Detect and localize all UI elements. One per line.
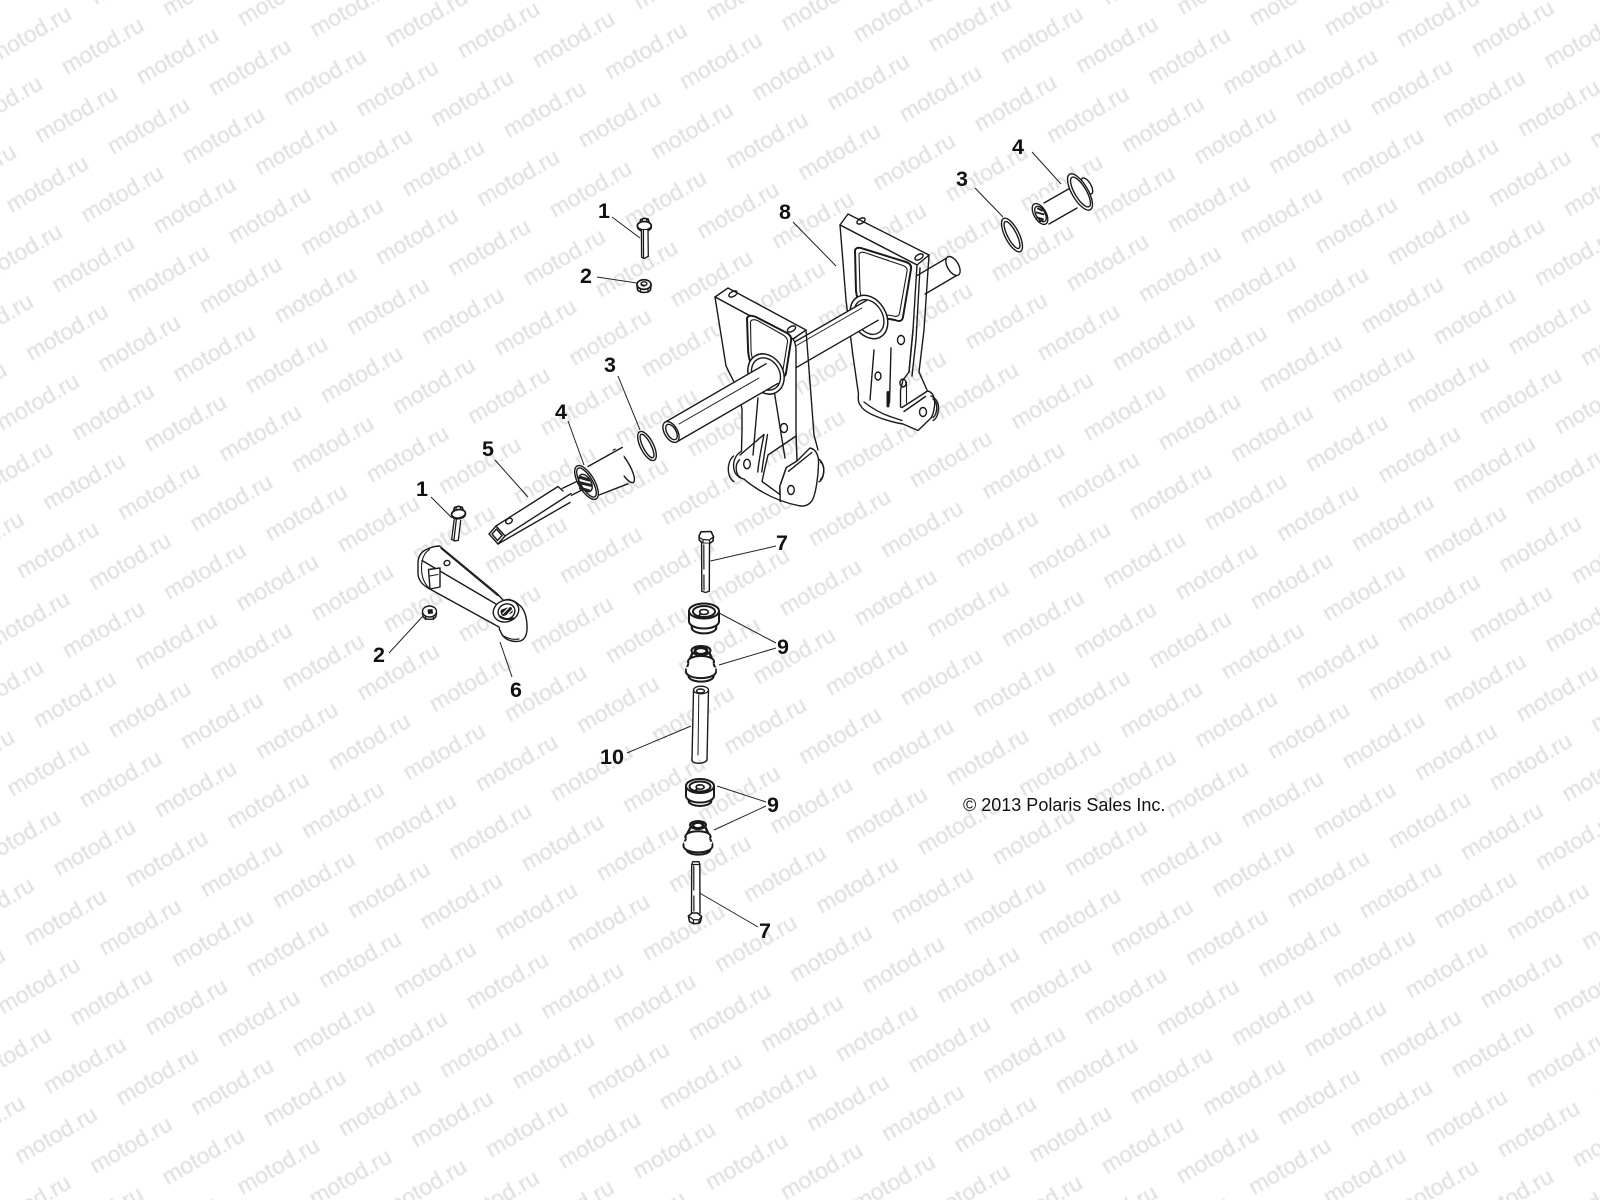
svg-text:2: 2 [580,264,592,288]
svg-text:1: 1 [416,477,428,501]
svg-text:4: 4 [1012,135,1024,159]
svg-text:3: 3 [956,167,968,191]
svg-text:6: 6 [510,678,522,702]
svg-text:9: 9 [767,793,779,817]
svg-text:7: 7 [776,531,788,555]
svg-text:10: 10 [600,745,624,769]
svg-text:© 2013 Polaris Sales Inc.: © 2013 Polaris Sales Inc. [963,795,1165,815]
svg-text:1: 1 [598,199,610,223]
svg-text:7: 7 [759,919,771,943]
svg-text:3: 3 [604,353,616,377]
svg-text:8: 8 [779,200,791,224]
svg-text:4: 4 [555,400,567,424]
svg-text:2: 2 [373,643,385,667]
svg-text:9: 9 [777,635,789,659]
svg-text:5: 5 [482,437,494,461]
